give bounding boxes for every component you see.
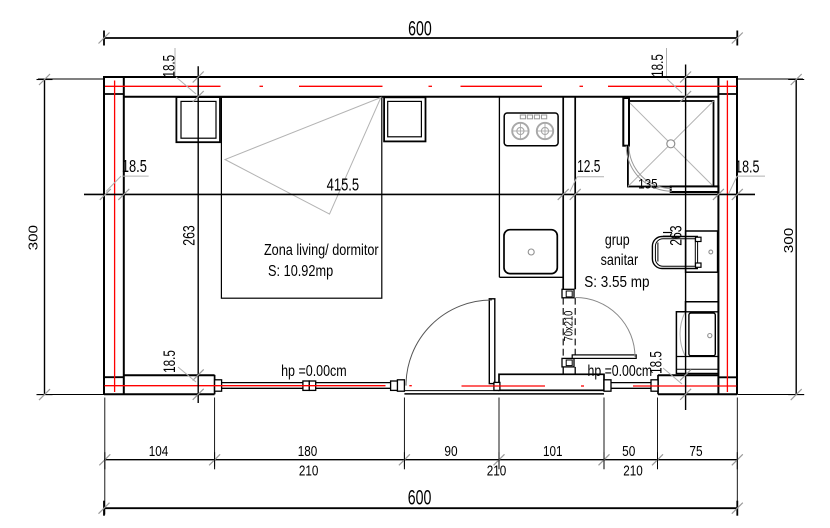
svg-text:sanitar: sanitar: [601, 252, 639, 269]
svg-text:263: 263: [181, 225, 199, 246]
svg-text:18.5: 18.5: [160, 350, 179, 373]
svg-text:135: 135: [638, 175, 658, 191]
svg-text:S: 10.92mp: S: 10.92mp: [268, 263, 333, 280]
svg-text:75: 75: [689, 444, 702, 460]
svg-text:hp =0.00cm: hp =0.00cm: [281, 363, 347, 380]
svg-text:101: 101: [543, 444, 563, 460]
svg-text:Zona living/ dormitor: Zona living/ dormitor: [264, 242, 379, 259]
svg-text:50: 50: [622, 444, 635, 460]
svg-text:18.5: 18.5: [735, 157, 759, 177]
svg-text:70x210: 70x210: [564, 311, 576, 342]
svg-text:210: 210: [623, 464, 643, 480]
svg-text:210: 210: [299, 464, 319, 480]
svg-text:18.5: 18.5: [160, 55, 179, 78]
svg-text:300: 300: [781, 228, 796, 254]
svg-text:grup: grup: [605, 232, 630, 249]
svg-text:90: 90: [444, 444, 457, 460]
svg-text:12.5: 12.5: [577, 156, 600, 176]
svg-text:210: 210: [487, 464, 507, 480]
svg-text:600: 600: [408, 17, 432, 40]
svg-text:415.5: 415.5: [327, 175, 360, 195]
svg-text:S: 3.55 mp: S: 3.55 mp: [584, 274, 649, 291]
svg-text:600: 600: [408, 486, 432, 509]
svg-text:18.5: 18.5: [122, 156, 147, 176]
svg-text:hp =0.00cm: hp =0.00cm: [588, 363, 653, 380]
svg-text:104: 104: [149, 444, 169, 460]
svg-text:263: 263: [668, 225, 686, 245]
svg-text:300: 300: [25, 225, 40, 251]
svg-text:18.5: 18.5: [648, 54, 667, 77]
svg-text:180: 180: [298, 444, 318, 460]
